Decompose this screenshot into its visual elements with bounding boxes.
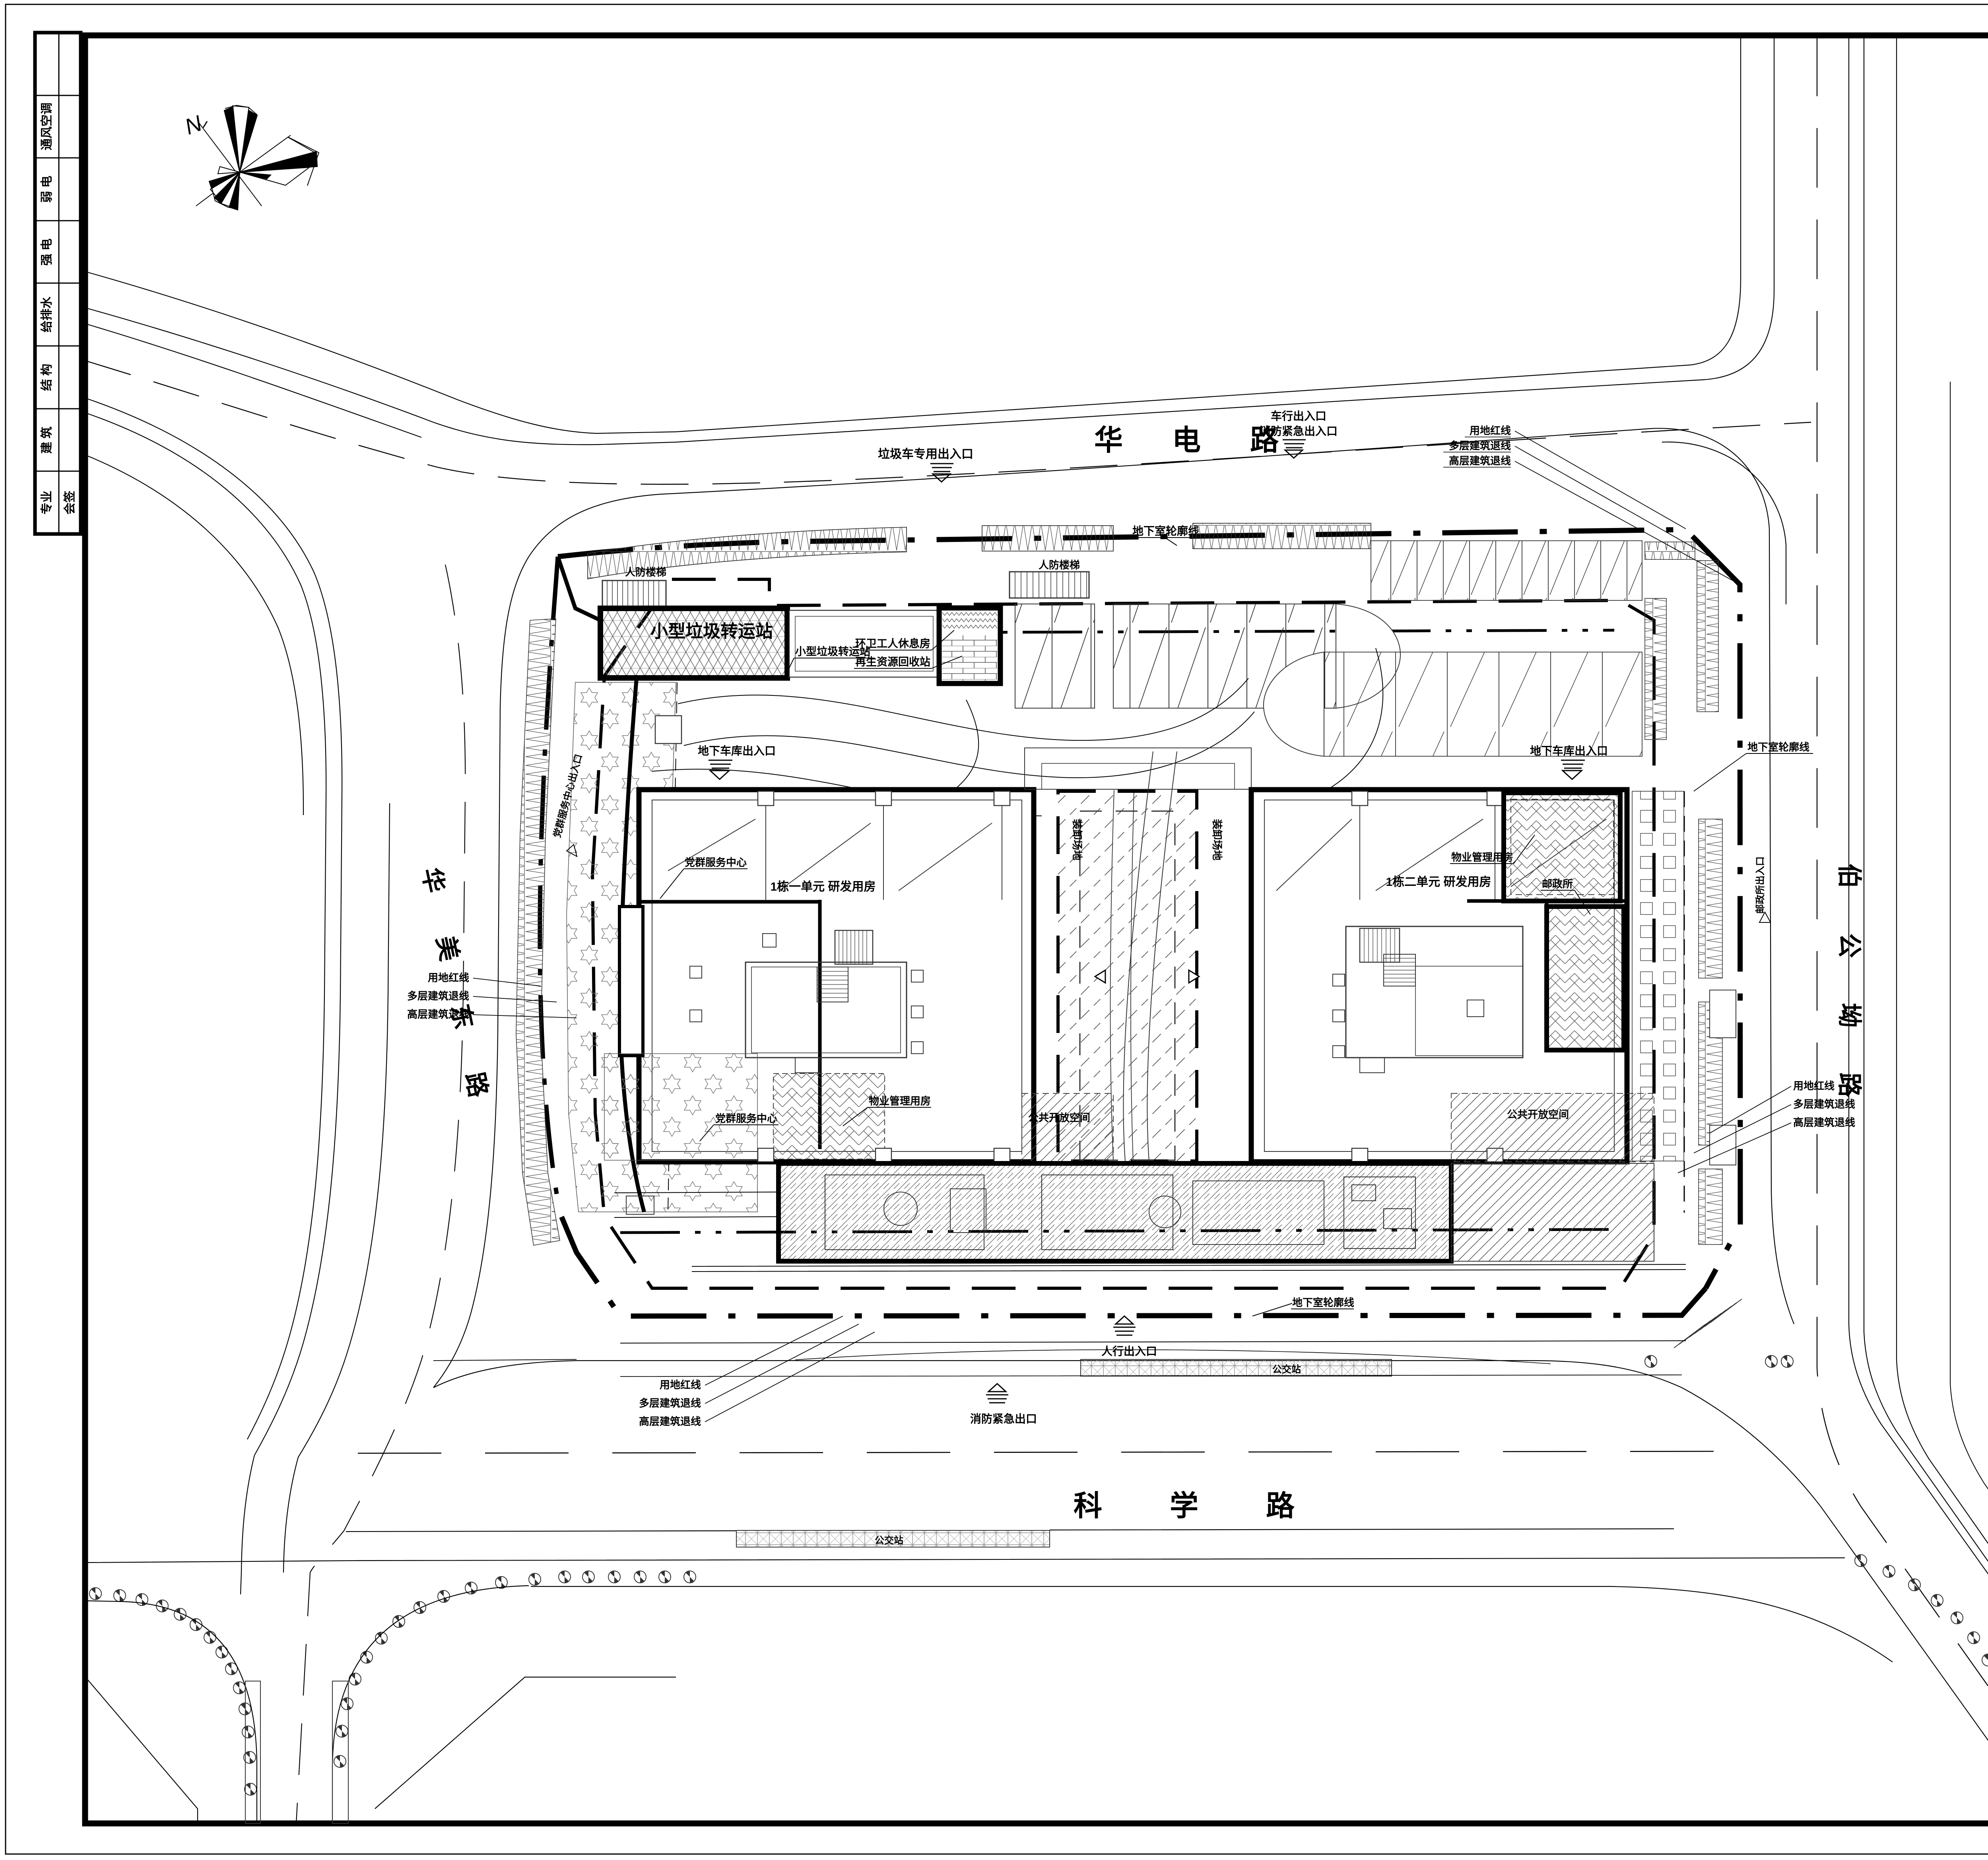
svg-text:人行出入口: 人行出入口 (1101, 1345, 1157, 1357)
svg-text:小型垃圾转运站: 小型垃圾转运站 (650, 622, 773, 641)
svg-text:公共开放空间: 公共开放空间 (1028, 1112, 1090, 1124)
svg-text:邮政所出入口: 邮政所出入口 (1755, 856, 1766, 914)
svg-text:党群服务中心: 党群服务中心 (685, 856, 747, 868)
svg-text:公交站: 公交站 (875, 1535, 903, 1546)
svg-text:消防紧急出入口: 消防紧急出入口 (1260, 425, 1338, 437)
svg-text:伯 公 坳 路: 伯 公 坳 路 (1835, 864, 1863, 1116)
svg-text:地下室轮廓线: 地下室轮廓线 (1132, 524, 1199, 537)
svg-text:人防楼梯: 人防楼梯 (1039, 559, 1080, 571)
svg-text:多层建筑退线: 多层建筑退线 (1793, 1098, 1855, 1110)
svg-text:高层建筑退线: 高层建筑退线 (639, 1415, 701, 1427)
svg-text:车行出入口: 车行出入口 (1271, 410, 1326, 422)
svg-text:邮政所: 邮政所 (1542, 878, 1573, 890)
svg-text:科 学 路: 科 学 路 (1074, 1490, 1324, 1522)
svg-text:强 电: 强 电 (41, 239, 54, 266)
svg-text:装卸场地: 装卸场地 (1071, 819, 1083, 860)
svg-text:弱 电: 弱 电 (41, 176, 54, 203)
svg-text:1栋一单元 研发用房: 1栋一单元 研发用房 (770, 880, 876, 893)
svg-text:地下车库出入口: 地下车库出入口 (698, 744, 776, 757)
svg-text:用地红线: 用地红线 (660, 1379, 701, 1391)
svg-text:环卫工人休息房: 环卫工人休息房 (855, 637, 930, 650)
svg-text:公交站: 公交站 (1272, 1364, 1301, 1375)
svg-text:党群服务中心: 党群服务中心 (715, 1113, 777, 1124)
svg-text:专业: 专业 (41, 491, 54, 515)
svg-text:多层建筑退线: 多层建筑退线 (639, 1397, 701, 1409)
svg-text:通风空调: 通风空调 (41, 103, 54, 150)
svg-text:用地红线: 用地红线 (428, 972, 469, 984)
svg-text:再生资源回收站: 再生资源回收站 (855, 656, 930, 668)
svg-text:地下车库出入口: 地下车库出入口 (1530, 744, 1608, 757)
svg-text:多层建筑退线: 多层建筑退线 (407, 990, 469, 1002)
svg-text:地下室轮廓线: 地下室轮廓线 (1747, 741, 1809, 753)
svg-text:高层建筑退线: 高层建筑退线 (1449, 455, 1511, 467)
svg-text:物业管理用房: 物业管理用房 (869, 1095, 931, 1107)
svg-text:建 筑: 建 筑 (40, 427, 54, 454)
svg-text:用地红线: 用地红线 (1470, 425, 1511, 437)
svg-text:会签: 会签 (63, 491, 77, 515)
svg-text:1栋二单元 研发用房: 1栋二单元 研发用房 (1386, 875, 1491, 889)
svg-text:结 构: 结 构 (41, 364, 54, 391)
svg-text:人防楼梯: 人防楼梯 (625, 566, 666, 578)
svg-text:地下室轮廓线: 地下室轮廓线 (1292, 1297, 1354, 1309)
svg-text:高层建筑退线: 高层建筑退线 (407, 1008, 469, 1020)
svg-text:多层建筑退线: 多层建筑退线 (1449, 440, 1511, 452)
svg-text:用地红线: 用地红线 (1793, 1080, 1835, 1092)
svg-text:消防紧急出口: 消防紧急出口 (970, 1413, 1037, 1425)
svg-text:垃圾车专用出入口: 垃圾车专用出入口 (878, 447, 973, 461)
svg-text:装卸场地: 装卸场地 (1211, 819, 1223, 860)
svg-text:给排水: 给排水 (41, 296, 54, 332)
svg-text:高层建筑退线: 高层建筑退线 (1793, 1116, 1855, 1128)
